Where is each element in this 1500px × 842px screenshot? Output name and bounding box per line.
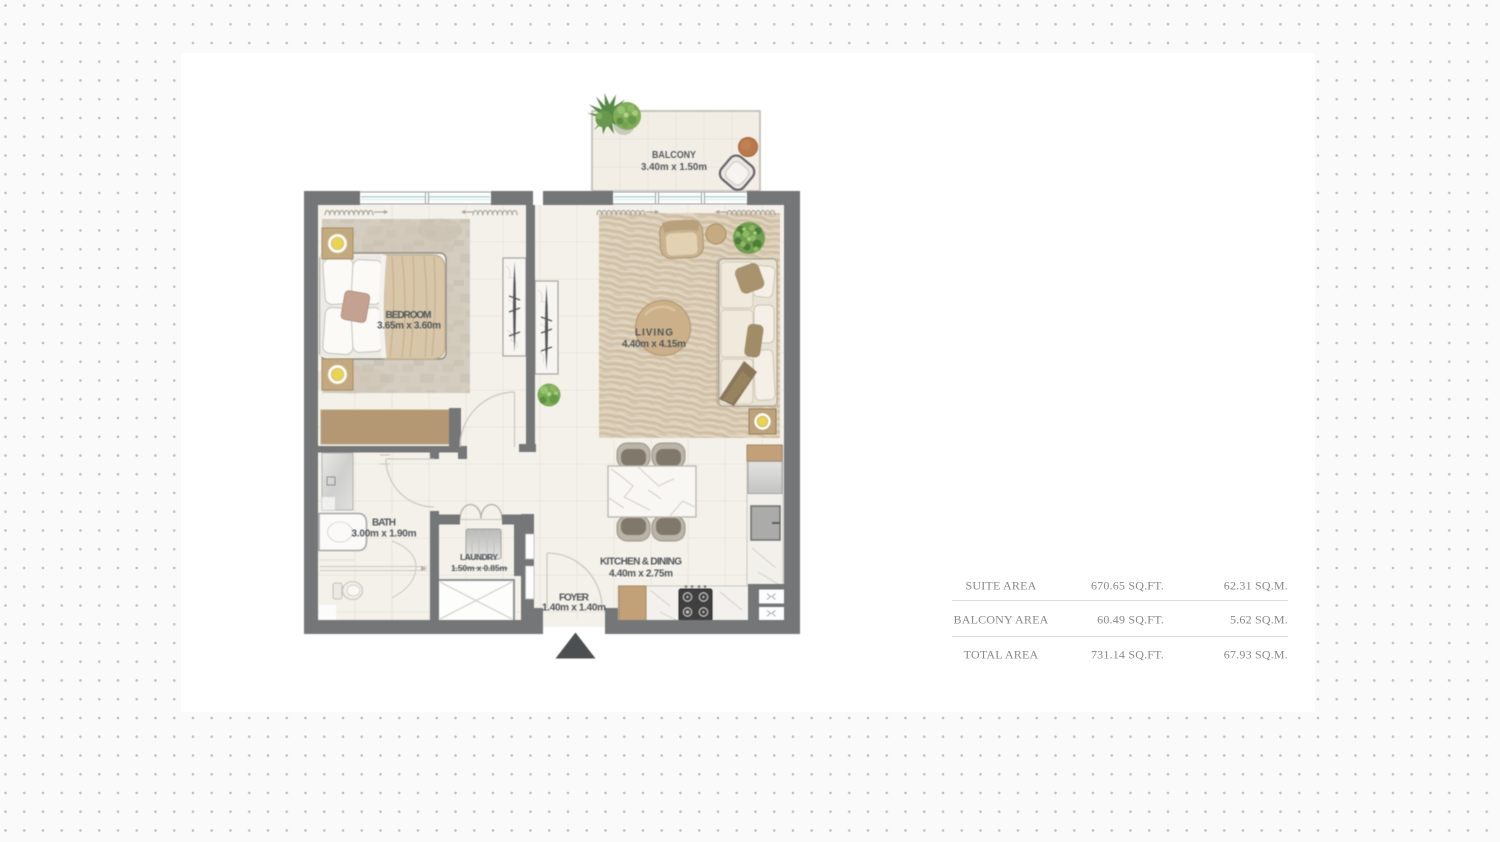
svg-text:LIVING: LIVING bbox=[635, 328, 673, 339]
svg-text:BATH: BATH bbox=[372, 518, 396, 529]
svg-text:4.40m x 4.15m: 4.40m x 4.15m bbox=[622, 339, 686, 350]
svg-text:LAUNDRY: LAUNDRY bbox=[460, 552, 498, 562]
svg-text:KITCHEN & DINING: KITCHEN & DINING bbox=[600, 557, 682, 568]
svg-text:BALCONY: BALCONY bbox=[652, 150, 696, 161]
svg-text:BEDROOM: BEDROOM bbox=[386, 310, 432, 321]
svg-text:4.40m x 2.75m: 4.40m x 2.75m bbox=[609, 569, 673, 580]
svg-text:3.65m x 3.60m: 3.65m x 3.60m bbox=[377, 321, 441, 332]
svg-text:3.40m x 1.50m: 3.40m x 1.50m bbox=[641, 162, 707, 173]
svg-text:3.00m x 1.90m: 3.00m x 1.90m bbox=[352, 529, 417, 540]
svg-text:1.40m x 1.40m: 1.40m x 1.40m bbox=[542, 603, 606, 614]
